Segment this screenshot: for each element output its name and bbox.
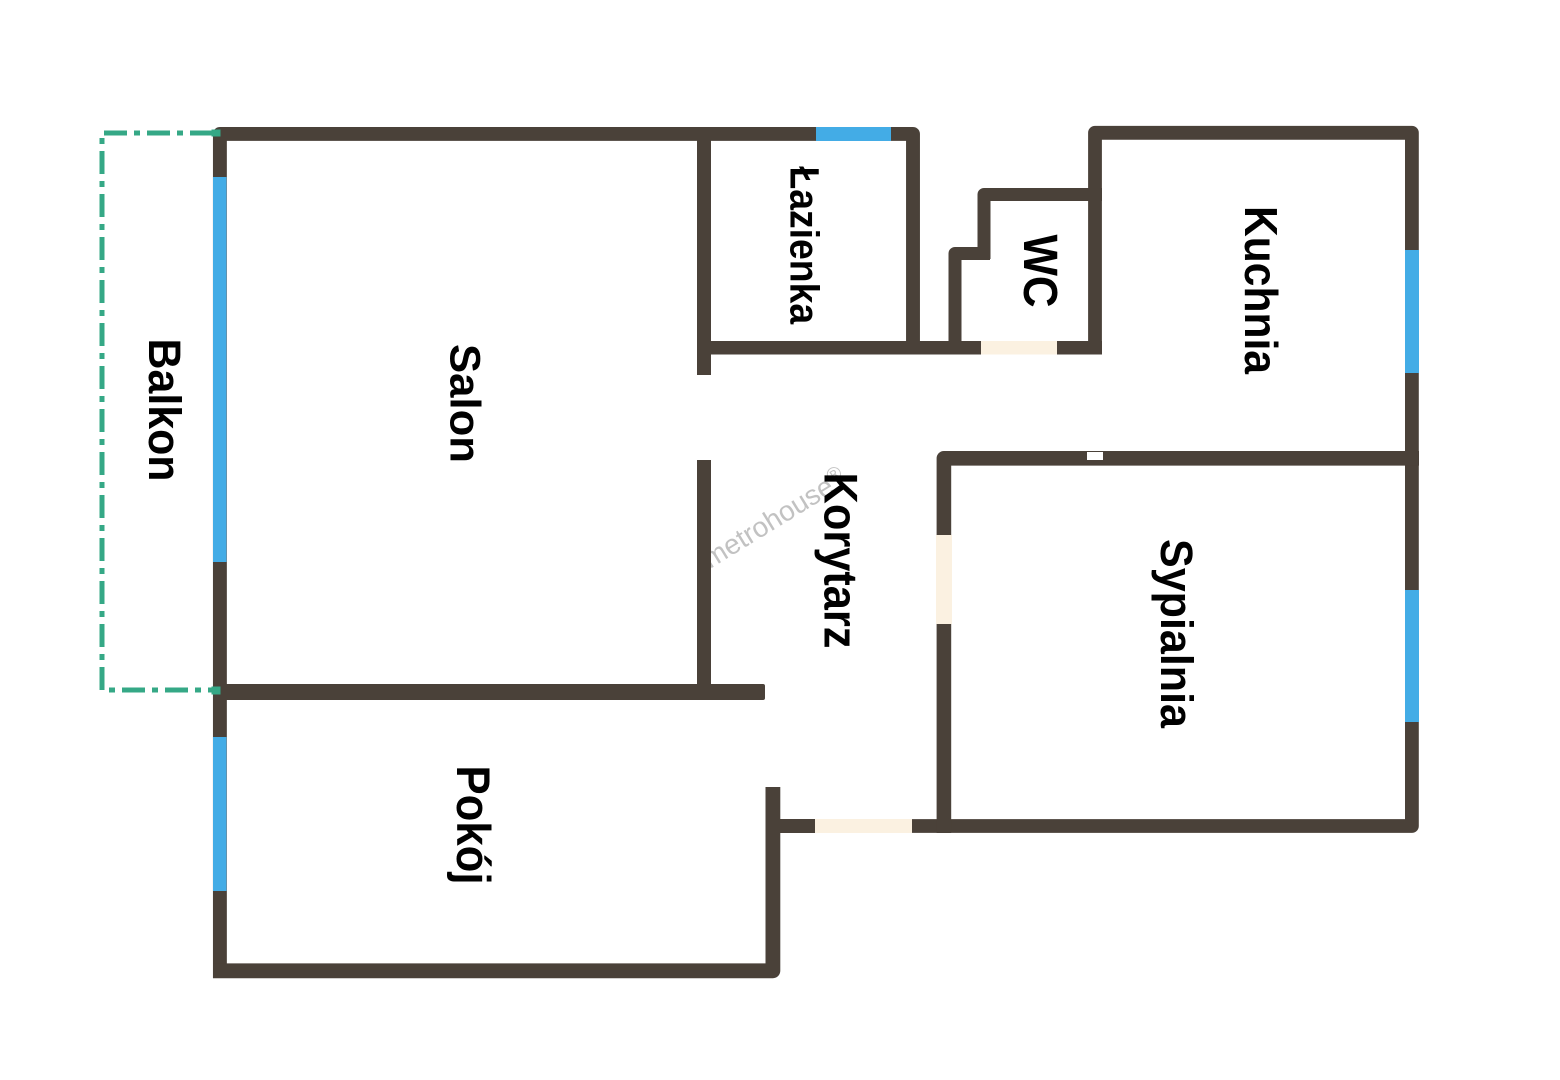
svg-text:Sypialnia: Sypialnia — [1151, 539, 1202, 729]
svg-text:WC: WC — [1013, 235, 1066, 308]
svg-text:Kuchnia: Kuchnia — [1235, 206, 1287, 374]
svg-text:Pokój: Pokój — [447, 766, 500, 885]
svg-text:Salon: Salon — [440, 344, 488, 463]
svg-text:Korytarz: Korytarz — [815, 473, 868, 649]
svg-text:Balkon: Balkon — [139, 339, 190, 482]
svg-text:Łazienka: Łazienka — [782, 167, 828, 326]
